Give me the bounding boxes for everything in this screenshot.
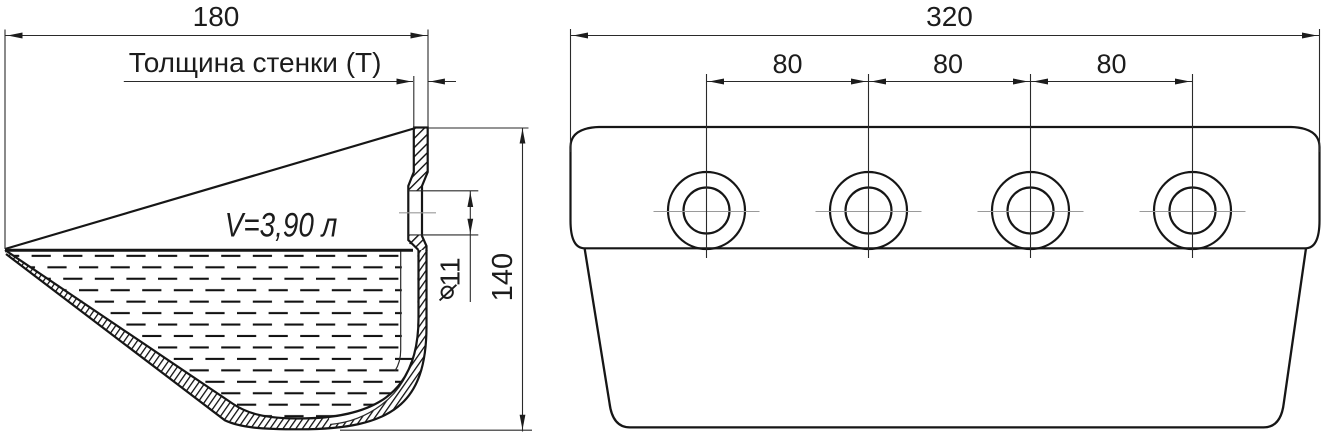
svg-text:80: 80 xyxy=(933,49,963,79)
svg-text:140: 140 xyxy=(487,253,519,301)
svg-text:320: 320 xyxy=(926,1,973,32)
svg-text:180: 180 xyxy=(193,1,240,32)
svg-text:Толщина стенки (Т): Толщина стенки (Т) xyxy=(129,47,382,78)
svg-text:80: 80 xyxy=(1096,49,1126,79)
svg-text:V=3,90 л: V=3,90 л xyxy=(225,206,338,244)
svg-text:80: 80 xyxy=(772,49,802,79)
svg-text:11: 11 xyxy=(435,257,466,286)
